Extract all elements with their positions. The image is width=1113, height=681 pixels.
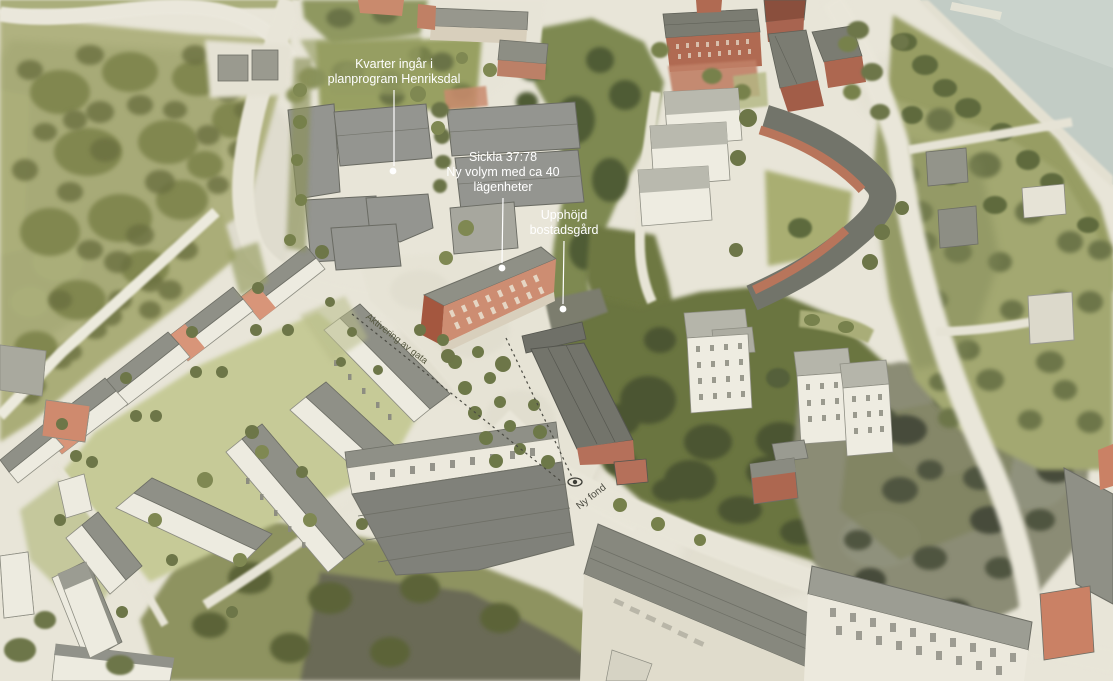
svg-text:Kvarter ingår i: Kvarter ingår i — [355, 57, 433, 71]
svg-text:lägenheter: lägenheter — [473, 180, 532, 194]
svg-text:Sickla 37:78: Sickla 37:78 — [469, 150, 537, 164]
svg-text:bostadsgård: bostadsgård — [530, 223, 599, 237]
svg-text:planprogram Henriksdal: planprogram Henriksdal — [328, 72, 461, 86]
svg-text:Ny volym med ca 40: Ny volym med ca 40 — [446, 165, 559, 179]
svg-text:Upphöjd: Upphöjd — [541, 208, 588, 222]
